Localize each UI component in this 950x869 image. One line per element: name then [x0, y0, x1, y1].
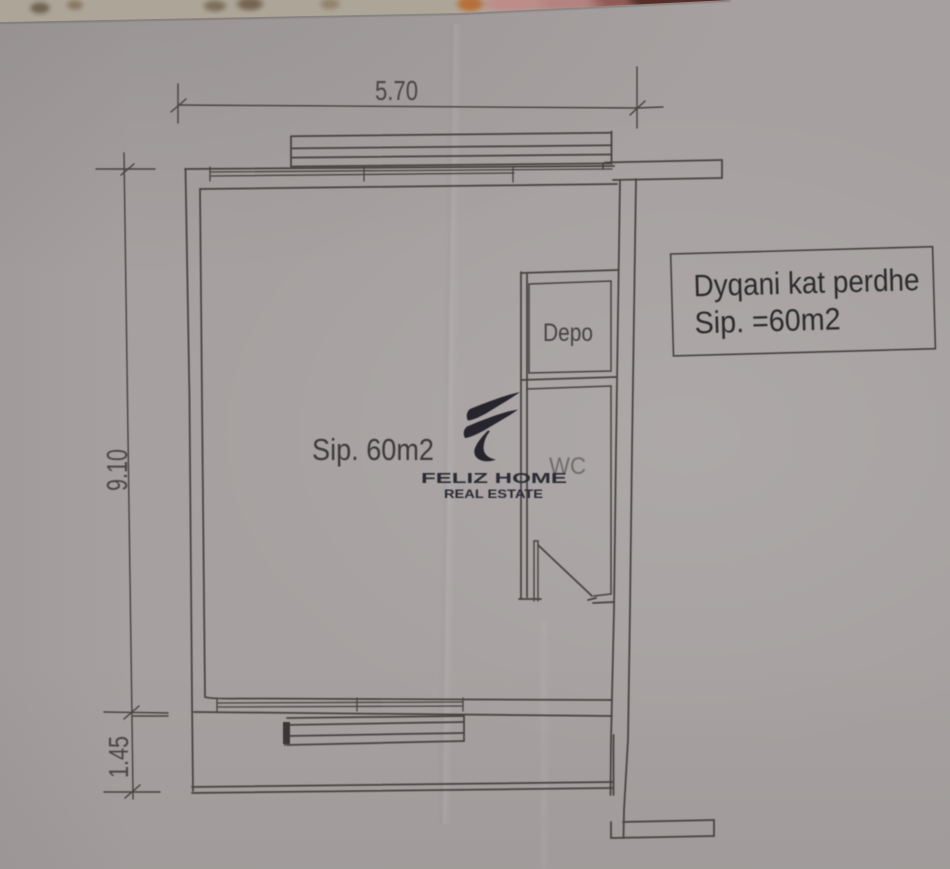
svg-text:FELIZ HOME: FELIZ HOME — [421, 470, 567, 487]
svg-text:Depo: Depo — [543, 319, 593, 347]
svg-text:REAL ESTATE: REAL ESTATE — [444, 489, 543, 501]
svg-text:Sip. 60m2: Sip. 60m2 — [312, 432, 434, 467]
svg-text:1.45: 1.45 — [103, 736, 134, 778]
svg-text:9.10: 9.10 — [102, 449, 134, 491]
svg-text:5.70: 5.70 — [375, 75, 418, 106]
svg-text:Sip. =60m2: Sip. =60m2 — [694, 301, 841, 340]
svg-text:Dyqani kat perdhe: Dyqani kat perdhe — [693, 262, 920, 303]
